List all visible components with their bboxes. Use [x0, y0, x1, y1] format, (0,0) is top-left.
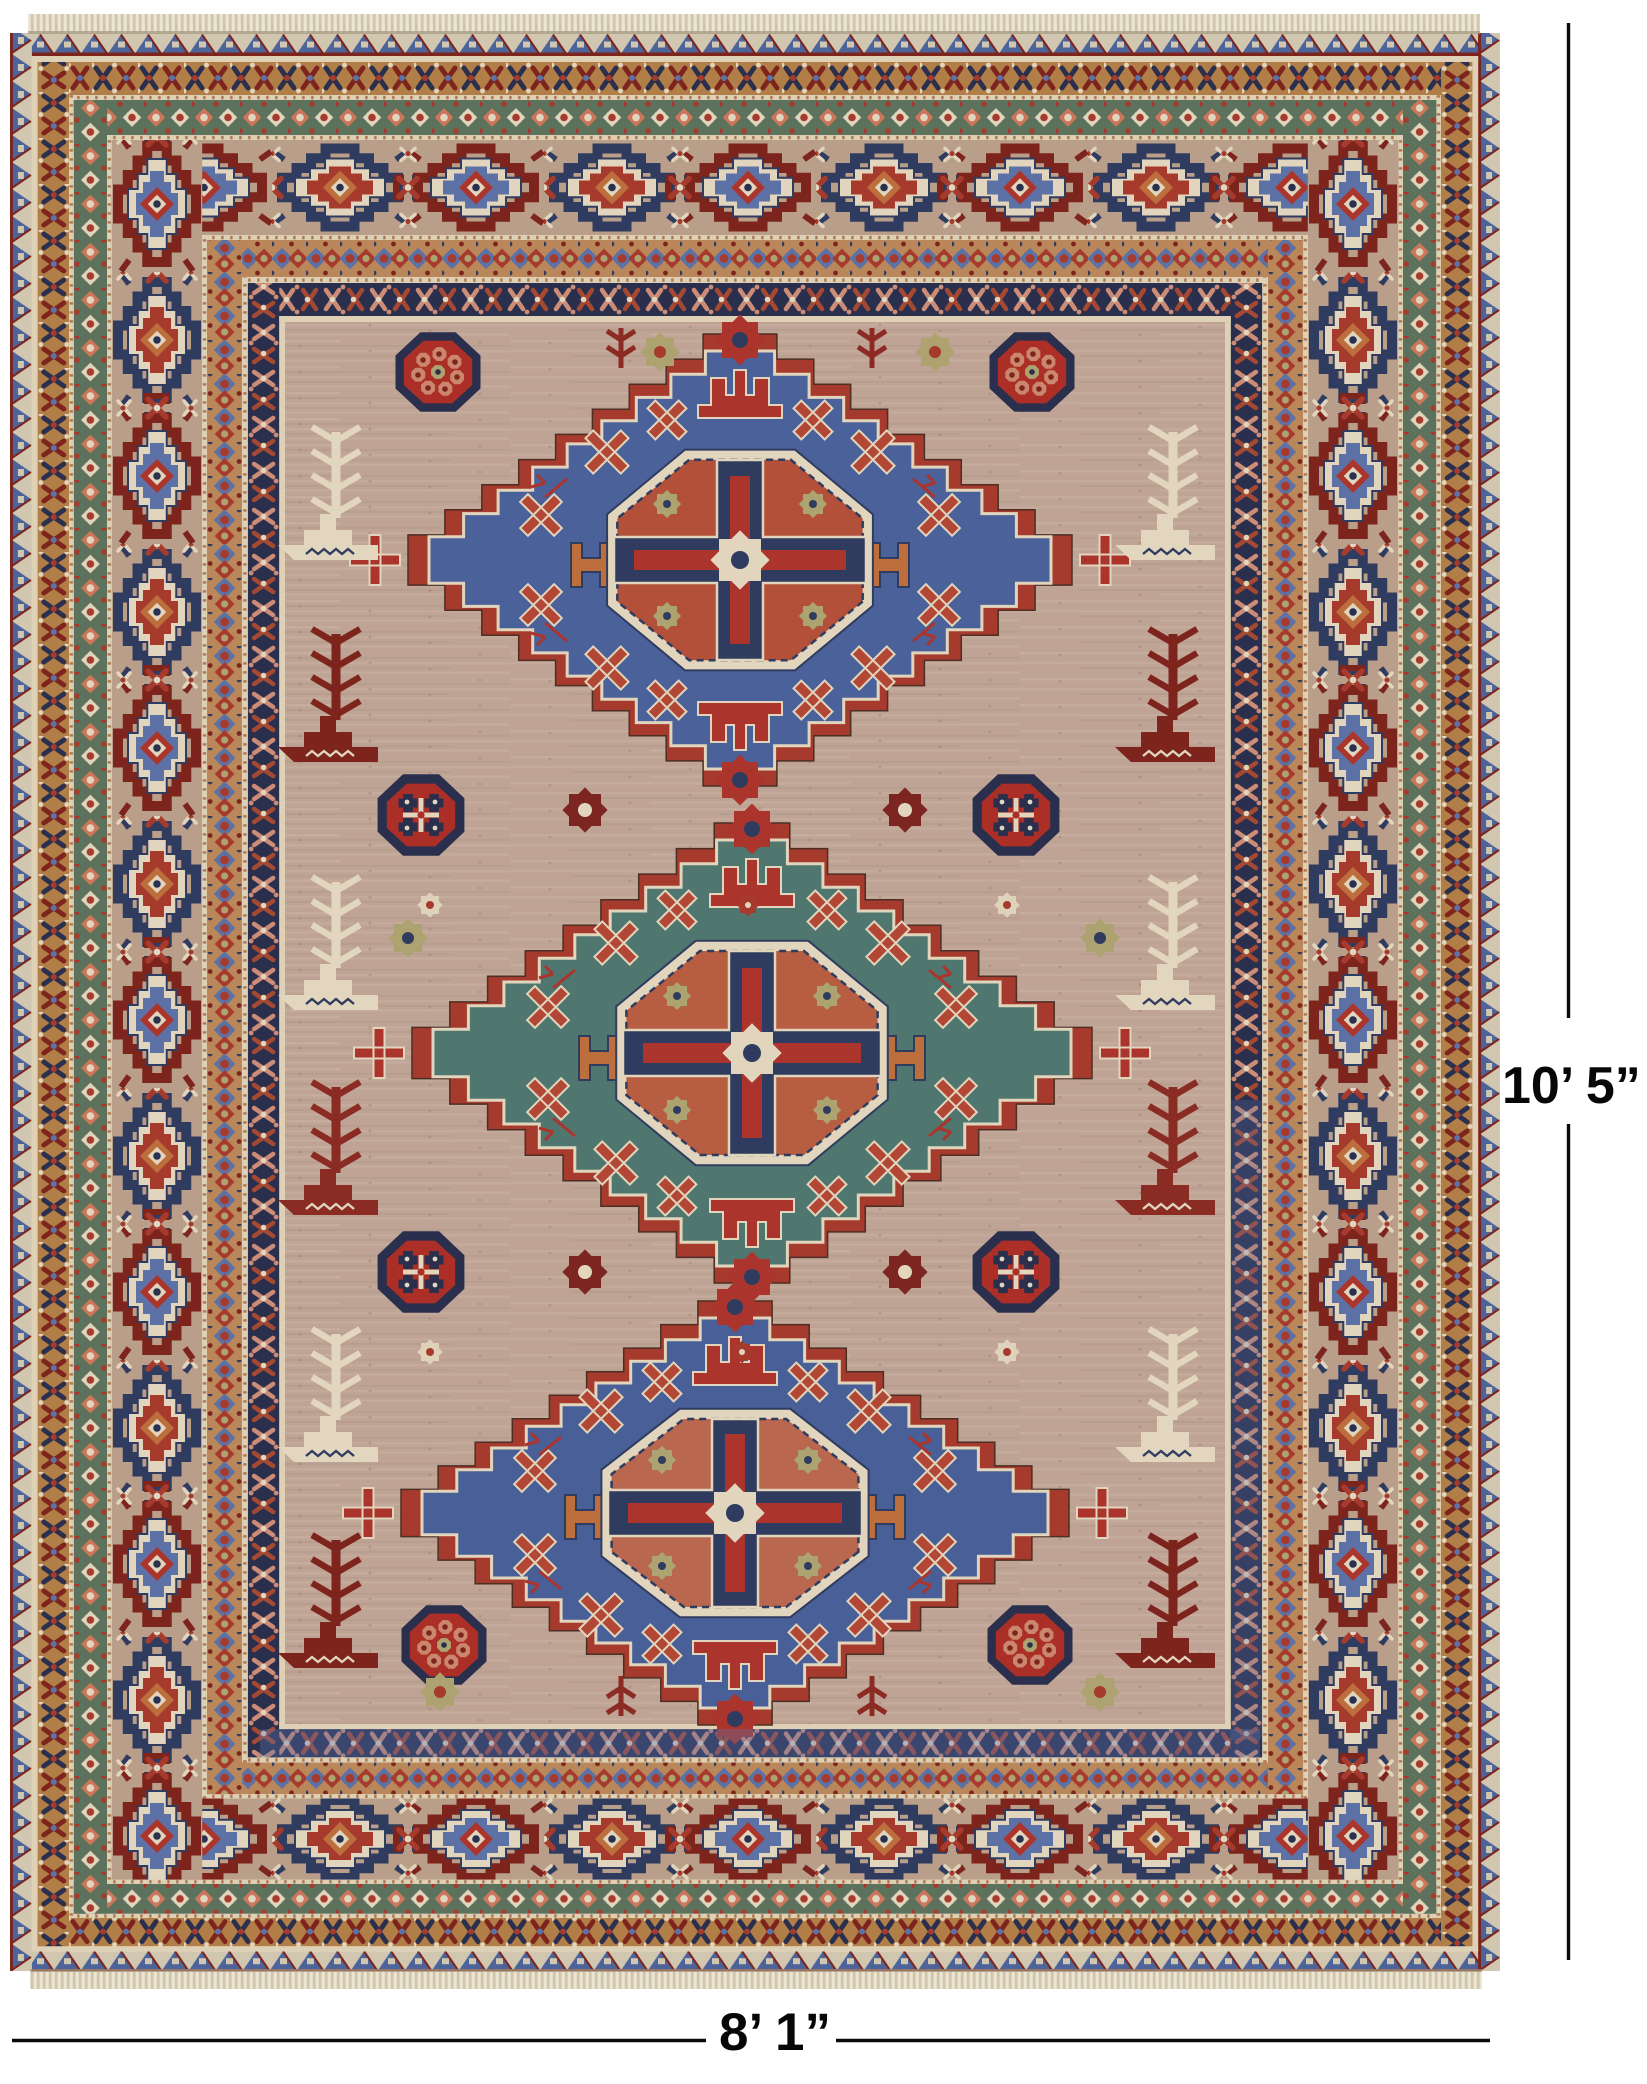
svg-text:10’ 5”: 10’ 5” [1502, 1057, 1641, 1115]
svg-text:8’ 1”: 8’ 1” [719, 2003, 831, 2062]
